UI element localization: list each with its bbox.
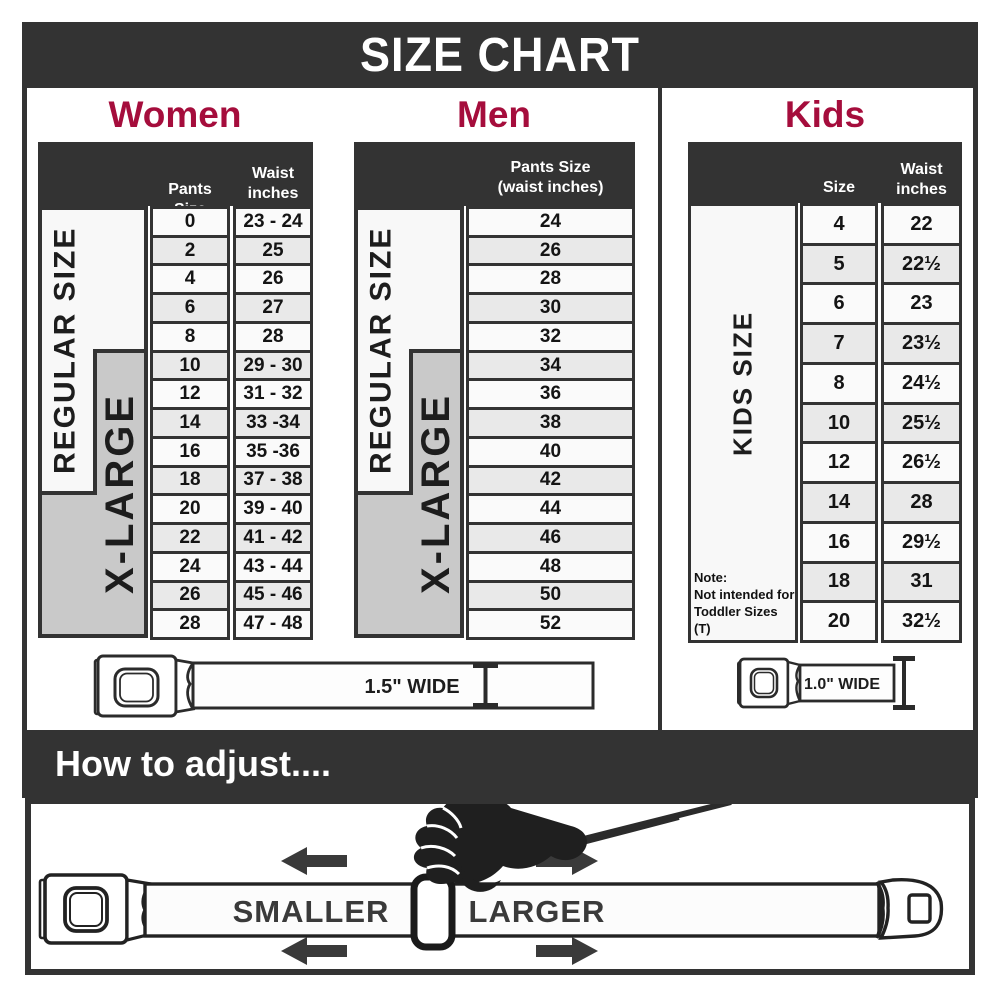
adult-belt-illustration: 1.5" WIDE <box>90 648 600 723</box>
section-divider <box>658 88 662 730</box>
table-cell: 8 <box>800 362 878 405</box>
page-title: SIZE CHART <box>360 27 640 83</box>
adjust-illustration: SMALLER LARGER <box>31 804 969 969</box>
table-cell: 27 <box>233 292 313 324</box>
table-cell: 23 <box>881 282 962 325</box>
kids-size-label: KIDS SIZE <box>688 203 798 563</box>
women-heading: Women <box>109 94 242 136</box>
table-cell: 0 <box>150 206 230 238</box>
table-cell: 14 <box>150 407 230 439</box>
table-cell: 24 <box>466 206 635 238</box>
men-size-col: 242628303234363840424446485052 <box>466 206 635 640</box>
table-cell: 33 -34 <box>233 407 313 439</box>
table-cell: 7 <box>800 322 878 365</box>
table-cell: 30 <box>466 292 635 324</box>
kids-col2-header: Waist inches <box>881 160 962 200</box>
kids-table-header: Size Waist inches <box>688 142 962 203</box>
width-marker-icon <box>893 656 915 710</box>
table-cell: 18 <box>150 465 230 497</box>
women-x-large-label: X-LARGE <box>93 351 148 636</box>
table-cell: 28 <box>466 263 635 295</box>
table-cell: 43 - 44 <box>233 551 313 583</box>
table-cell: 24½ <box>881 362 962 405</box>
table-cell: 32 <box>466 321 635 353</box>
arrow-left-icon <box>281 847 347 875</box>
table-cell: 32½ <box>881 600 962 643</box>
table-cell: 26 <box>233 263 313 295</box>
table-cell: 24 <box>150 551 230 583</box>
men-col-header: Pants Size (waist inches) <box>466 158 635 198</box>
adult-belt-width-label: 1.5" WIDE <box>364 676 459 698</box>
table-cell: 25½ <box>881 402 962 445</box>
women-regular-size-label: REGULAR SIZE <box>38 208 93 493</box>
men-regular-size-label: REGULAR SIZE <box>354 208 409 493</box>
table-cell: 8 <box>150 321 230 353</box>
kids-size-table: Size Waist inches KIDS SIZE Note: Not in… <box>688 142 962 643</box>
table-cell: 10 <box>800 402 878 445</box>
women-waist-col: 23 - 242526272829 - 3031 - 3233 -3435 -3… <box>233 206 313 640</box>
table-cell: 23 - 24 <box>233 206 313 238</box>
table-cell: 44 <box>466 493 635 525</box>
kids-col1-header: Size <box>800 178 878 198</box>
pull-line-2 <box>579 818 679 844</box>
table-cell: 46 <box>466 522 635 554</box>
table-cell: 4 <box>150 263 230 295</box>
table-cell: 52 <box>466 608 635 640</box>
kids-heading: Kids <box>785 94 865 136</box>
women-col2-header: Waist inches <box>233 164 313 204</box>
table-cell: 20 <box>150 493 230 525</box>
belt-tip-icon <box>877 880 941 938</box>
seatbelt-buckle-icon <box>40 875 151 943</box>
table-cell: 5 <box>800 243 878 286</box>
table-cell: 22 <box>150 522 230 554</box>
table-cell: 6 <box>150 292 230 324</box>
table-cell: 26 <box>466 235 635 267</box>
kids-belt-width-label: 1.0" WIDE <box>804 676 880 693</box>
hand-icon <box>414 804 587 892</box>
men-size-table: Pants Size (waist inches) REGULAR SIZE X… <box>354 142 635 640</box>
table-cell: 45 - 46 <box>233 580 313 612</box>
how-to-adjust-heading: How to adjust.... <box>55 743 331 785</box>
main-right-border <box>973 88 978 730</box>
table-cell: 6 <box>800 282 878 325</box>
men-x-large-label: X-LARGE <box>409 351 464 636</box>
table-cell: 26½ <box>881 441 962 484</box>
kids-size-col: 45678101214161820 <box>800 203 878 643</box>
table-cell: 41 - 42 <box>233 522 313 554</box>
belt-adjuster <box>414 877 452 947</box>
table-cell: 16 <box>800 521 878 564</box>
women-size-table: Pants Size Waist inches REGULAR SIZE X-L… <box>38 142 313 640</box>
main-left-border <box>22 88 27 730</box>
table-cell: 28 <box>881 481 962 524</box>
table-cell: 12 <box>150 378 230 410</box>
table-cell: 31 - 32 <box>233 378 313 410</box>
table-cell: 29½ <box>881 521 962 564</box>
table-cell: 34 <box>466 350 635 382</box>
seatbelt-buckle-icon <box>95 656 193 716</box>
table-cell: 25 <box>233 235 313 267</box>
table-cell: 23½ <box>881 322 962 365</box>
table-cell: 22 <box>881 203 962 246</box>
size-chart-page: SIZE CHART Women Men Kids Pants Size Wai… <box>0 0 1000 1000</box>
table-cell: 42 <box>466 465 635 497</box>
table-cell: 26 <box>150 580 230 612</box>
table-cell: 50 <box>466 580 635 612</box>
table-cell: 48 <box>466 551 635 583</box>
title-band: SIZE CHART <box>22 22 978 88</box>
kids-belt-illustration: 1.0" WIDE <box>730 652 930 714</box>
table-cell: 10 <box>150 350 230 382</box>
table-cell: 29 - 30 <box>233 350 313 382</box>
kids-waist-col: 2222½2323½24½25½26½2829½3132½ <box>881 203 962 643</box>
table-cell: 14 <box>800 481 878 524</box>
arrow-right-icon <box>536 937 598 965</box>
table-cell: 37 - 38 <box>233 465 313 497</box>
table-cell: 39 - 40 <box>233 493 313 525</box>
kids-note: Note: Not intended for Toddler Sizes (T) <box>694 570 796 638</box>
women-pants-col: 0246810121416182022242628 <box>150 206 230 640</box>
table-cell: 47 - 48 <box>233 608 313 640</box>
table-cell: 35 -36 <box>233 436 313 468</box>
table-cell: 12 <box>800 441 878 484</box>
table-cell: 31 <box>881 561 962 604</box>
table-cell: 2 <box>150 235 230 267</box>
table-cell: 28 <box>233 321 313 353</box>
larger-label: LARGER <box>469 894 606 929</box>
arrow-left-icon <box>281 937 347 965</box>
table-cell: 36 <box>466 378 635 410</box>
seatbelt-buckle-icon <box>738 659 800 707</box>
men-heading: Men <box>457 94 531 136</box>
table-cell: 22½ <box>881 243 962 286</box>
table-cell: 4 <box>800 203 878 246</box>
table-cell: 28 <box>150 608 230 640</box>
table-cell: 18 <box>800 561 878 604</box>
table-cell: 16 <box>150 436 230 468</box>
table-cell: 40 <box>466 436 635 468</box>
how-to-adjust-band: How to adjust.... <box>22 730 978 798</box>
table-cell: 38 <box>466 407 635 439</box>
how-to-adjust-panel: SMALLER LARGER <box>25 798 975 975</box>
smaller-label: SMALLER <box>233 894 390 929</box>
table-cell: 20 <box>800 600 878 643</box>
